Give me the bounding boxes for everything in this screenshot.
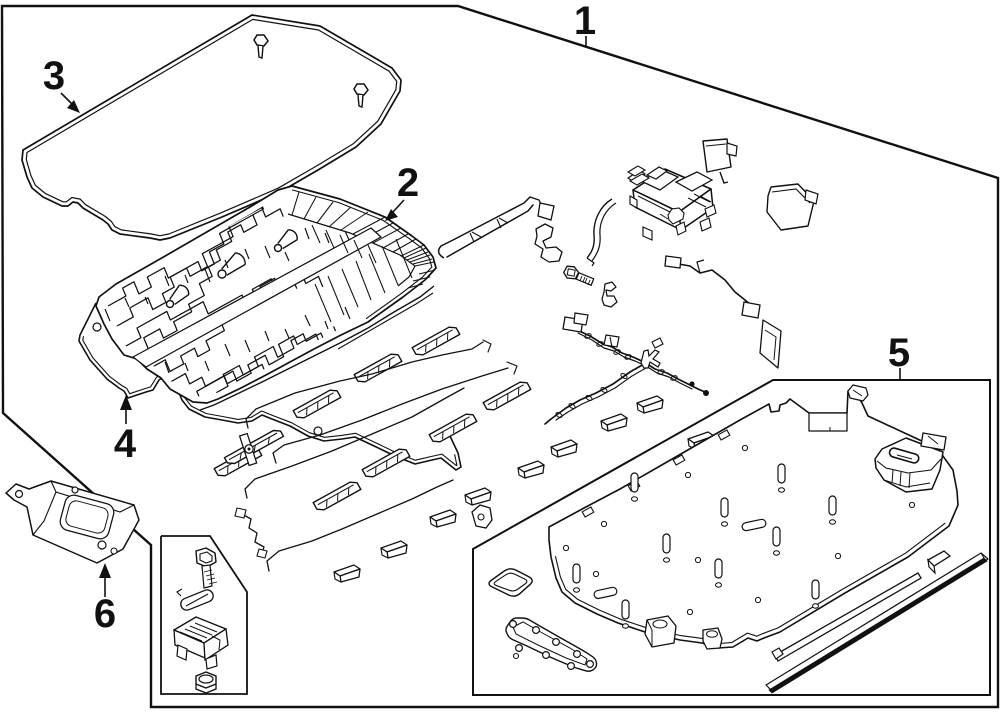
svg-text:4: 4: [114, 422, 137, 466]
svg-text:2: 2: [397, 161, 419, 205]
svg-text:1: 1: [574, 0, 596, 43]
svg-text:5: 5: [888, 331, 910, 375]
svg-text:6: 6: [94, 592, 116, 636]
svg-text:3: 3: [43, 54, 65, 98]
